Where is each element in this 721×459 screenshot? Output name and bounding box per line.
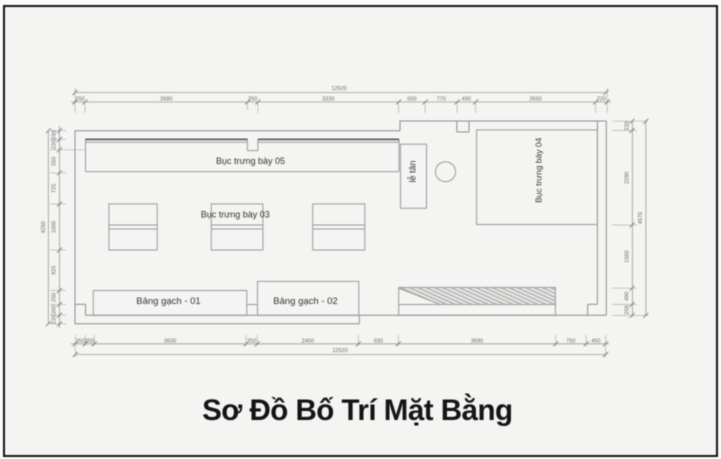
svg-text:220: 220 [52, 315, 58, 324]
svg-text:Bảng gạch - 02: Bảng gạch - 02 [273, 296, 337, 307]
svg-text:3330: 3330 [322, 97, 334, 103]
svg-text:1000: 1000 [52, 221, 58, 233]
svg-text:220: 220 [52, 140, 58, 149]
svg-text:250: 250 [52, 293, 58, 302]
svg-text:3690: 3690 [471, 338, 483, 344]
svg-text:250: 250 [75, 97, 84, 103]
svg-text:Sơ Đồ Bố Trí Mặt Bằng: Sơ Đồ Bố Trí Mặt Bằng [202, 393, 512, 427]
svg-text:250: 250 [248, 97, 257, 103]
svg-text:1560: 1560 [625, 250, 631, 262]
svg-text:220: 220 [625, 121, 631, 130]
svg-text:Bảng gạch - 01: Bảng gạch - 01 [136, 296, 200, 307]
svg-text:lễ tân: lễ tân [407, 160, 417, 182]
svg-text:4250: 4250 [41, 221, 47, 233]
svg-text:12520: 12520 [331, 86, 346, 92]
svg-text:200: 200 [52, 305, 58, 314]
svg-text:12520: 12520 [332, 348, 347, 354]
svg-text:Bục trưng bày 05: Bục trưng bày 05 [216, 156, 285, 166]
svg-text:220: 220 [597, 97, 606, 103]
svg-text:3600: 3600 [164, 338, 176, 344]
svg-text:Bục trưng bày 04: Bục trưng bày 04 [533, 137, 543, 203]
svg-text:650: 650 [407, 97, 416, 103]
svg-text:2680: 2680 [160, 97, 172, 103]
svg-text:258: 258 [625, 305, 631, 314]
svg-text:2400: 2400 [302, 338, 314, 344]
svg-text:250: 250 [76, 338, 85, 344]
svg-text:725: 725 [52, 184, 58, 193]
svg-text:250: 250 [247, 338, 256, 344]
svg-text:550: 550 [52, 157, 58, 166]
svg-text:490: 490 [462, 97, 471, 103]
svg-text:450: 450 [591, 338, 600, 344]
svg-text:750: 750 [566, 338, 575, 344]
svg-text:Bục trưng bày 03: Bục trưng bày 03 [201, 209, 270, 219]
svg-text:200: 200 [85, 338, 94, 344]
svg-text:925: 925 [52, 266, 58, 275]
svg-text:490: 490 [625, 292, 631, 301]
svg-text:930: 930 [374, 338, 383, 344]
svg-text:4570: 4570 [638, 212, 644, 224]
svg-text:770: 770 [437, 97, 446, 103]
svg-text:2280: 2280 [625, 172, 631, 184]
svg-text:2650: 2650 [529, 97, 541, 103]
svg-text:250: 250 [52, 131, 58, 140]
